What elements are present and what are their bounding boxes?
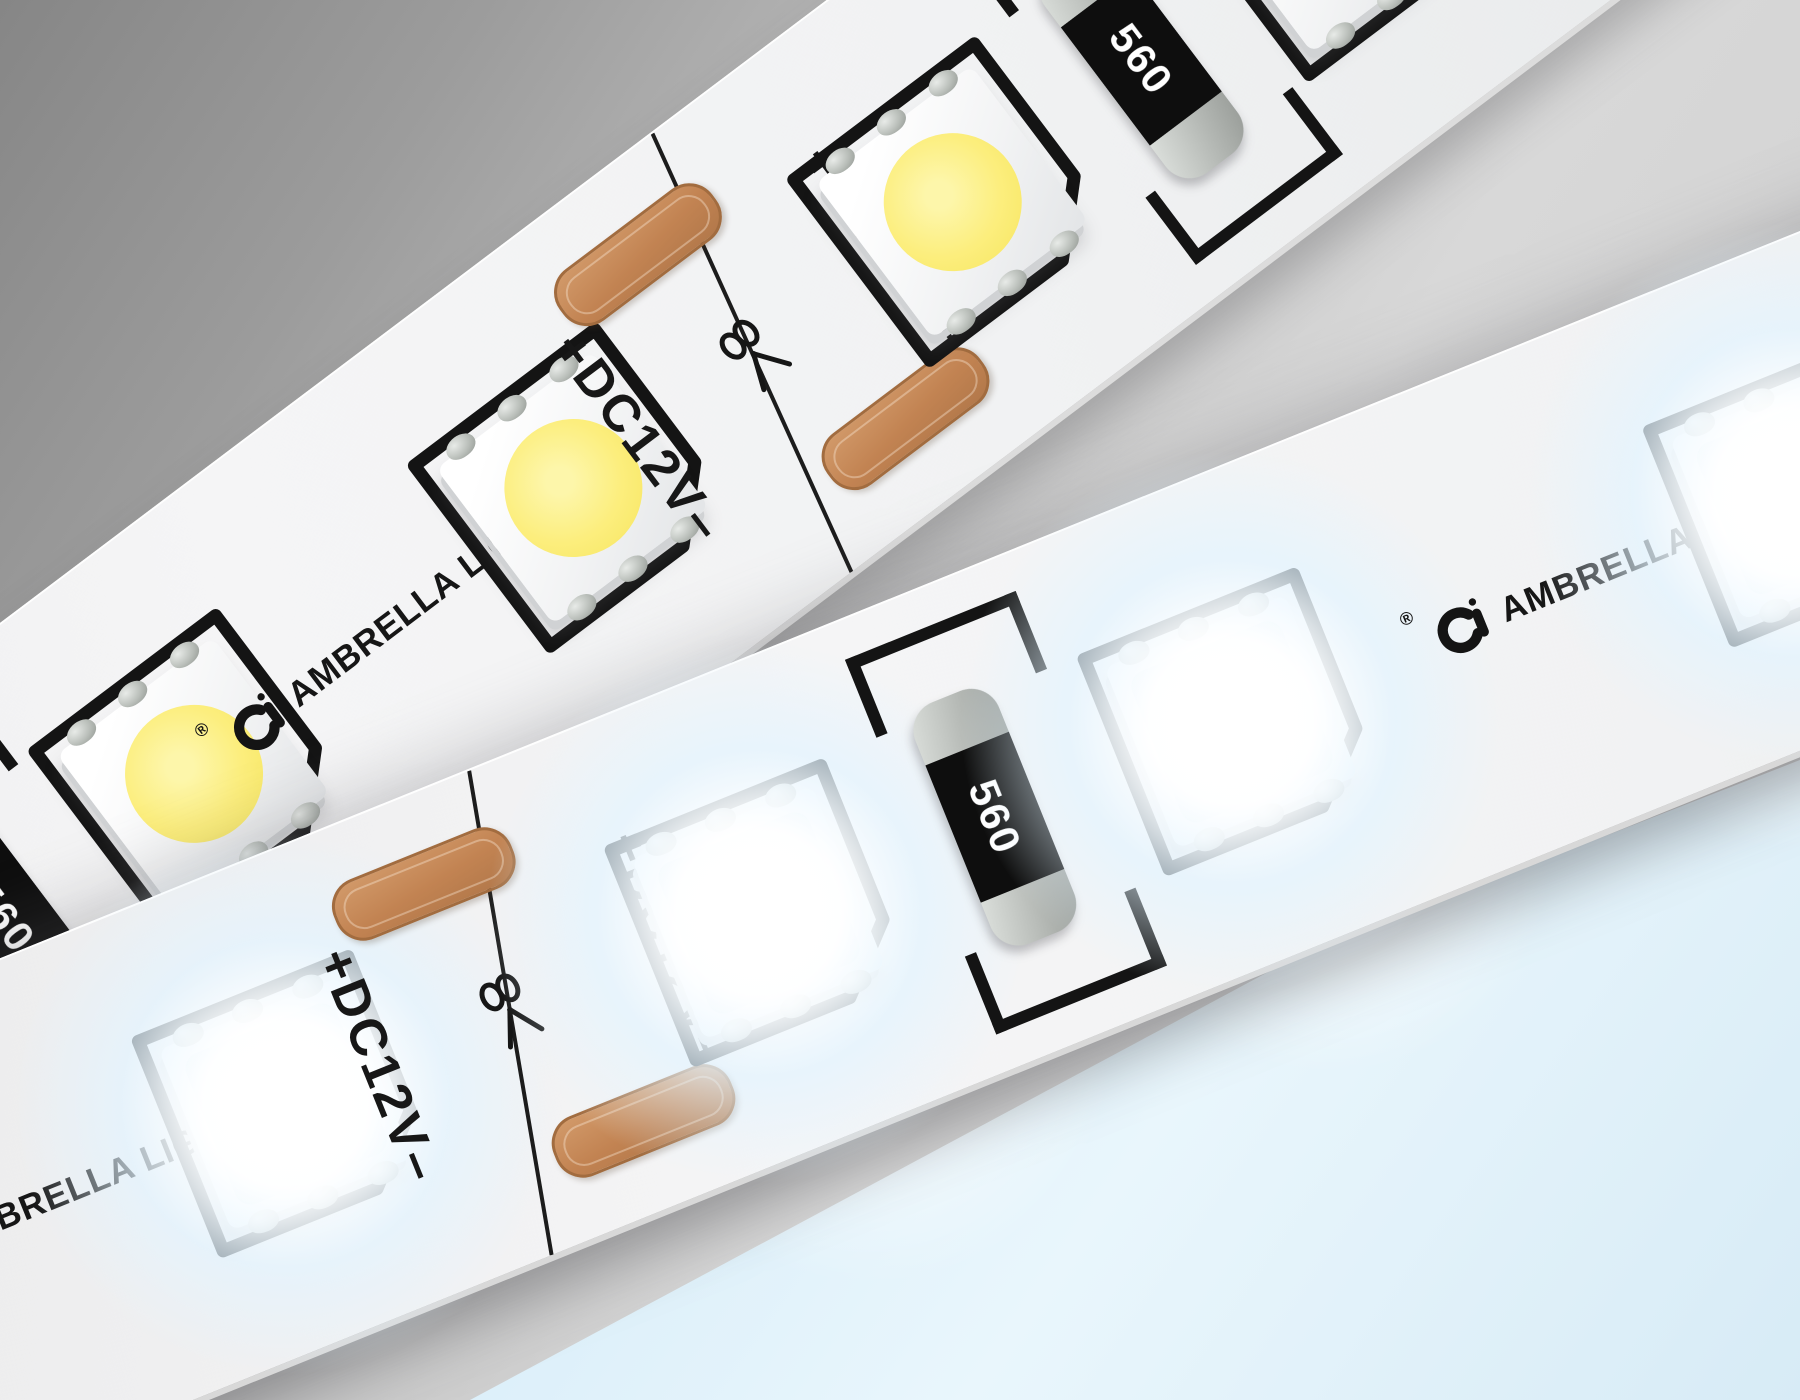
registered-trademark: ® [190,718,213,743]
led-chip [653,807,864,1018]
registered-trademark: ® [1396,606,1416,630]
resistor-value: 560 [1099,15,1183,105]
smd-resistor: 560 [904,680,1085,955]
scene: 560 ® AMBRELLA LIGHT [0,0,1800,1400]
ambrella-logo-icon [1426,592,1499,665]
ambrella-logo-icon [219,685,297,763]
resistor-value: 560 [958,773,1031,862]
